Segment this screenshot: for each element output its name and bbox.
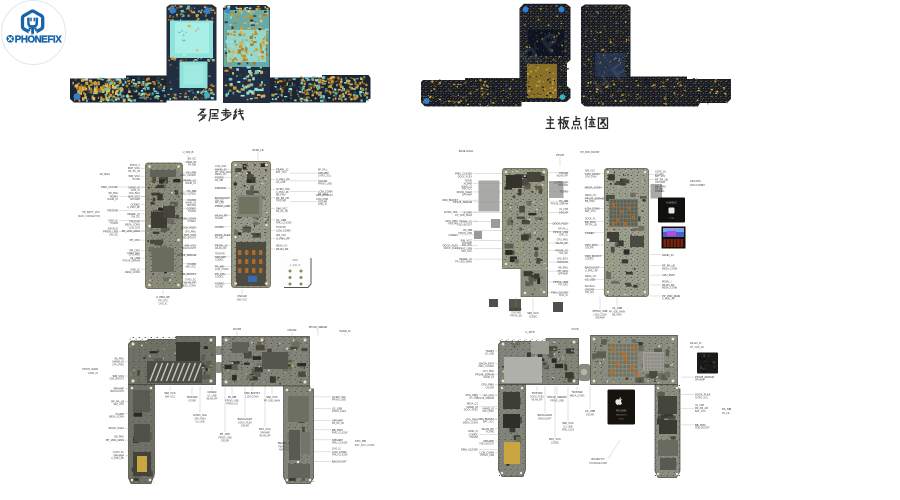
svg-text:XCVR0: XCVR0: [188, 400, 196, 402]
svg-text:DOCK_FLEX: DOCK_FLEX: [109, 426, 125, 430]
svg-text:PHONEFIX: PHONEFIX: [15, 34, 62, 45]
svg-text:BACKLIG: BACKLIG: [108, 227, 118, 230]
svg-text:XCVR0: XCVR0: [215, 285, 224, 288]
svg-text:SIM_VCC: SIM_VCC: [562, 421, 574, 425]
svg-text:PA_MB: PA_MB: [215, 237, 223, 240]
svg-text:TRISTAR: TRISTAR: [532, 391, 543, 395]
svg-text:VDD_BOOST: VDD_BOOST: [244, 391, 260, 395]
svg-text:PMU_CLK32K: PMU_CLK32K: [461, 447, 478, 451]
svg-text:U_PMU_RF: U_PMU_RF: [111, 457, 124, 460]
svg-text:BB_PMU: BB_PMU: [585, 200, 595, 203]
svg-text:WLAN_IC: WLAN_IC: [690, 341, 702, 345]
svg-text:VDD_BOOST: VDD_BOOST: [457, 223, 472, 226]
svg-text:A13 CPU: A13 CPU: [690, 179, 701, 183]
svg-text:VDD_BOOST: VDD_BOOST: [109, 378, 124, 381]
svg-text:TRISTAR: TRISTAR: [186, 204, 196, 207]
svg-text:PP1V8_SDRAM: PP1V8_SDRAM: [548, 395, 567, 399]
svg-text:GYRO_SCL: GYRO_SCL: [444, 210, 459, 214]
svg-text:DOCK_FLEX: DOCK_FLEX: [444, 247, 459, 250]
svg-text:U2_USB: U2_USB: [485, 353, 495, 356]
svg-text:SIM_VCC: SIM_VCC: [165, 396, 176, 398]
svg-text:STORAGE PWR: STORAGE PWR: [589, 462, 607, 465]
svg-text:MESA_CONN: MESA_CONN: [181, 284, 196, 287]
svg-text:SW_I2C: SW_I2C: [585, 291, 594, 294]
svg-text:U2_USB: U2_USB: [559, 209, 568, 211]
svg-text:SW_I2C: SW_I2C: [131, 216, 140, 219]
svg-text:TIGRIS: TIGRIS: [110, 222, 118, 225]
svg-text:OSCAR: OSCAR: [221, 440, 230, 443]
svg-text:PA_MB: PA_MB: [188, 164, 196, 167]
svg-text:MESA_CONN: MESA_CONN: [662, 287, 677, 290]
svg-text:BAT_VCC: BAT_VCC: [259, 427, 271, 431]
svg-text:TRISTAR: TRISTAR: [187, 395, 198, 399]
svg-text:BACKLIGHT: BACKLIGHT: [538, 413, 553, 417]
svg-text:TIGRIS: TIGRIS: [188, 210, 196, 213]
svg-text:RFFE_LB: RFFE_LB: [253, 149, 264, 152]
svg-text:PEARL_IC: PEARL_IC: [278, 441, 291, 445]
svg-text:OSCAR: OSCAR: [469, 436, 478, 439]
svg-text:U_PMU_RF: U_PMU_RF: [156, 295, 170, 299]
svg-text:VDD_BOOST: VDD_BOOST: [695, 427, 710, 430]
svg-text:CODEC: CODEC: [449, 233, 458, 237]
svg-text:SPKAMP: SPKAMP: [695, 379, 705, 382]
svg-text:NAND_IO: NAND_IO: [185, 182, 196, 185]
svg-text:CPU_PMU: CPU_PMU: [482, 410, 494, 413]
svg-text:PMU_CLK32K: PMU_CLK32K: [332, 453, 348, 456]
svg-text:VDD_BOOST: VDD_BOOST: [479, 443, 494, 446]
svg-text:CPU_PMU: CPU_PMU: [662, 273, 675, 277]
svg-text:GYRO_SCL: GYRO_SCL: [695, 396, 709, 399]
svg-text:CPU_PMU: CPU_PMU: [129, 255, 141, 257]
svg-text:CHG_IC: CHG_IC: [559, 233, 568, 236]
svg-text:PMU_CLK32K: PMU_CLK32K: [332, 431, 348, 434]
svg-text:PP_BATT_VCC: PP_BATT_VCC: [82, 211, 100, 214]
svg-text:CHG_IC: CHG_IC: [131, 189, 140, 192]
svg-text:PMU_CLK32K: PMU_CLK32K: [180, 174, 196, 177]
svg-text:PP5V0_USB: PP5V0_USB: [225, 400, 239, 402]
svg-text:PP5V0_USB: PP5V0_USB: [593, 309, 608, 313]
svg-text:TRISTAR: TRISTAR: [215, 253, 225, 256]
svg-text:BACKLIGHT: BACKLIGHT: [110, 390, 124, 393]
svg-text:APL1W92: APL1W92: [616, 410, 627, 413]
svg-text:WLAN_RF: WLAN_RF: [557, 174, 569, 177]
svg-text:LCM_CON: LCM_CON: [215, 166, 227, 168]
svg-text:OSCAR: OSCAR: [241, 425, 250, 428]
svg-text:PP1V8_SDRAM: PP1V8_SDRAM: [477, 397, 494, 400]
svg-text:J_SIM_B: J_SIM_B: [290, 263, 301, 267]
svg-text:PP_VDD_MAIN: PP_VDD_MAIN: [609, 310, 626, 313]
svg-text:MESA_CO: MESA_CO: [585, 194, 596, 197]
svg-text:SPKAMP: SPKAMP: [462, 194, 472, 197]
svg-text:SIM_VCC: SIM_VCC: [185, 265, 196, 268]
svg-text:MESA_CO: MESA_CO: [585, 275, 596, 278]
svg-text:U2_USB: U2_USB: [564, 426, 573, 428]
svg-text:1739: 1739: [669, 218, 675, 220]
svg-text:BB_PMU: BB_PMU: [559, 268, 569, 270]
svg-text:WLAN_RF: WLAN_RF: [215, 247, 227, 250]
svg-text:RAM COMBO: RAM COMBO: [690, 184, 705, 187]
svg-text:TRISTAR: TRISTAR: [276, 226, 286, 229]
svg-text:BACKLIG: BACKLIG: [585, 285, 595, 288]
svg-text:PP_CPU: PP_CPU: [558, 284, 568, 287]
svg-text:NAND_IO: NAND_IO: [510, 307, 522, 311]
svg-text:CODEC: CODEC: [207, 390, 216, 394]
svg-text:XCVR0: XCVR0: [132, 178, 141, 181]
svg-text:SIM: SIM: [292, 258, 298, 262]
svg-text:U_SIM_B: U_SIM_B: [183, 151, 194, 154]
svg-text:BAT_VCC: BAT_VCC: [655, 175, 666, 178]
svg-text:SW_I2C: SW_I2C: [187, 159, 196, 161]
svg-text:CODEC: CODEC: [551, 442, 560, 444]
svg-text:PMU_CLK32K: PMU_CLK32K: [332, 441, 348, 444]
svg-text:SIM_VCC: SIM_VCC: [164, 391, 176, 395]
svg-text:CPU_PMU: CPU_PMU: [112, 363, 124, 366]
svg-text:BACKLIGHT: BACKLIGHT: [182, 247, 196, 250]
svg-text:PMU_CLK32K: PMU_CLK32K: [478, 365, 494, 368]
svg-text:VDD_BOOST: VDD_BOOST: [181, 236, 196, 239]
svg-text:PA_MB: PA_MB: [228, 395, 237, 399]
svg-text:CAM_PWR: CAM_PWR: [316, 198, 328, 201]
svg-text:NAND_IO: NAND_IO: [468, 430, 478, 433]
svg-text:NAND_IO: NAND_IO: [662, 253, 674, 257]
svg-text:PP_VDD_MAIN: PP_VDD_MAIN: [455, 261, 472, 264]
svg-text:PMU_CLK32K: PMU_CLK32K: [101, 185, 118, 189]
svg-text:LCM_CON: LCM_CON: [129, 227, 141, 229]
svg-text:PP5V0_U: PP5V0_U: [130, 165, 140, 167]
svg-text:GYRO_SC: GYRO_SC: [113, 452, 125, 454]
svg-text:PP5V0_USB: PP5V0_USB: [480, 454, 494, 457]
svg-text:BACKLIGHT: BACKLIGHT: [538, 417, 552, 420]
svg-text:SPKAMP: SPKAMP: [130, 198, 140, 201]
svg-text:A-2345 IC: A-2345 IC: [666, 202, 677, 205]
svg-text:PA_MB: PA_MB: [722, 407, 731, 411]
svg-text:CHG_IC: CHG_IC: [559, 294, 568, 297]
svg-text:RF_FE: RF_FE: [722, 412, 730, 415]
svg-text:CODEC: CODEC: [655, 189, 664, 193]
svg-text:SPKAMP: SPKAMP: [595, 317, 605, 320]
svg-text:DOCK_FLEX: DOCK_FLEX: [458, 175, 473, 178]
svg-text:TRISTAR: TRISTAR: [107, 208, 118, 212]
svg-text:SIM_VCC: SIM_VCC: [462, 189, 473, 191]
svg-text:BASE GOLD: BASE GOLD: [459, 150, 474, 153]
svg-text:TRISTAR: TRISTAR: [572, 390, 583, 394]
svg-text:SW_I2C: SW_I2C: [109, 233, 118, 236]
svg-text:GYRO_SCL: GYRO_SCL: [193, 413, 208, 417]
svg-text:SIM_VCC: SIM_VCC: [113, 403, 124, 406]
svg-text:LCM_CONN: LCM_CONN: [246, 396, 259, 398]
svg-text:WLAN_RF: WLAN_RF: [207, 398, 219, 401]
svg-text:GYRO_SC: GYRO_SC: [185, 279, 197, 281]
svg-text:BAT_VCC: BAT_VCC: [585, 210, 596, 213]
svg-text:U2_USB: U2_USB: [196, 422, 205, 424]
svg-text:BAT_VCC: BAT_VCC: [483, 421, 494, 424]
svg-text:TRISTAR: TRISTAR: [511, 311, 521, 314]
svg-text:U_PMU_RF: U_PMU_RF: [276, 191, 289, 194]
svg-text:BB_PMU: BB_PMU: [276, 195, 286, 197]
svg-text:PP1V8_SDRAM: PP1V8_SDRAM: [123, 260, 140, 263]
svg-text:PP1V8: PP1V8: [556, 154, 564, 157]
svg-text:CPU_PMU: CPU_PMU: [194, 418, 206, 420]
svg-text:PP_CPU: PP_CPU: [215, 203, 225, 205]
svg-text:TIGRIS: TIGRIS: [464, 180, 472, 182]
svg-text:U2_USB: U2_USB: [469, 397, 479, 400]
svg-text:CPU_PMU: CPU_PMU: [185, 231, 197, 233]
svg-text:CHG_IC: CHG_IC: [332, 448, 341, 450]
svg-text:CPU_PMU: CPU_PMU: [557, 240, 569, 242]
svg-text:RF_PA_LB: RF_PA_LB: [585, 223, 597, 226]
svg-text:BB_PMU: BB_PMU: [115, 437, 125, 439]
svg-text:SIM_VCC: SIM_VCC: [527, 311, 539, 315]
svg-text:SPKAMP: SPKAMP: [260, 431, 270, 434]
svg-text:2133: 2133: [619, 419, 625, 421]
svg-text:OSCAR: OSCAR: [586, 413, 595, 416]
svg-text:MESA_CONN: MESA_CONN: [125, 223, 140, 226]
svg-text:PP5V0_USB: PP5V0_USB: [332, 399, 346, 402]
svg-text:RF_PA_LB: RF_PA_LB: [276, 210, 288, 213]
svg-text:BOARD TO: BOARD TO: [592, 458, 605, 461]
svg-text:BAT_SOC_CONN: BAT_SOC_CONN: [355, 444, 375, 447]
svg-text:BAT_VCC: BAT_VCC: [276, 171, 287, 174]
svg-text:CPU_PMU: CPU_PMU: [585, 175, 597, 178]
svg-text:MESA_CO: MESA_CO: [215, 173, 226, 176]
svg-text:PEARL_I: PEARL_I: [662, 281, 672, 284]
svg-text:U2_USB: U2_USB: [612, 306, 622, 310]
svg-text:PP_CPU: PP_CPU: [220, 432, 231, 436]
svg-text:PP1V8_SDRAM: PP1V8_SDRAM: [551, 203, 568, 206]
svg-text:BAT_VCC: BAT_VCC: [549, 437, 561, 441]
svg-text:U_PMU_RF: U_PMU_RF: [662, 298, 675, 301]
svg-text:BAT_VCC: BAT_VCC: [695, 410, 706, 413]
svg-text:VDD_BOO: VDD_BOO: [557, 259, 568, 261]
svg-text:DOCK_FL: DOCK_FL: [585, 218, 596, 220]
svg-text:PP_VDD_PA: PP_VDD_PA: [690, 346, 704, 349]
svg-text:PP5V0_USB: PP5V0_USB: [218, 437, 232, 439]
svg-text:NAND_IO: NAND_IO: [107, 198, 118, 201]
svg-text:BB_PMU: BB_PMU: [109, 193, 119, 195]
svg-text:TRISTAR: TRISTAR: [276, 200, 286, 203]
svg-text:BACKLIGHT: BACKLIGHT: [332, 459, 347, 463]
svg-text:TIGRIS: TIGRIS: [215, 217, 223, 220]
svg-text:SIM_VCC: SIM_VCC: [237, 299, 248, 301]
svg-text:AP_BGA: AP_BGA: [100, 172, 111, 176]
svg-text:RF_PA_L: RF_PA_L: [558, 227, 569, 230]
svg-text:WLAN_RF: WLAN_RF: [532, 399, 544, 402]
svg-text:PP1V8_SDRAM: PP1V8_SDRAM: [309, 326, 327, 329]
svg-text:TRISTAR: TRISTAR: [448, 223, 458, 226]
svg-text:U2_USB: U2_USB: [208, 395, 217, 397]
svg-text:MESA_CO: MESA_CO: [467, 402, 478, 405]
svg-text:XCVR: XCVR: [571, 327, 578, 331]
svg-text:U_WTR: U_WTR: [525, 330, 534, 334]
svg-text:RF_PA_LB: RF_PA_LB: [128, 170, 140, 173]
svg-text:DOCK_FLEX: DOCK_FLEX: [238, 422, 252, 424]
svg-text:PP_CPU: PP_CPU: [130, 238, 141, 242]
svg-text:CPU_PMU: CPU_PMU: [483, 371, 495, 373]
svg-text:GYRO_SCL: GYRO_SCL: [318, 175, 332, 178]
svg-text:CODEC: CODEC: [187, 220, 196, 223]
svg-text:TRISTAR: TRISTAR: [655, 181, 665, 184]
svg-text:CODEC: CODEC: [585, 257, 594, 260]
svg-text:U_PMU_RF: U_PMU_RF: [585, 269, 598, 272]
svg-text:CODEC: CODEC: [215, 259, 224, 262]
svg-text:BB_PMU: BB_PMU: [115, 358, 125, 360]
svg-text:PA_MB: PA_MB: [215, 179, 223, 182]
svg-text:SW_I2C: SW_I2C: [559, 252, 568, 255]
svg-text:BB_PMU: BB_PMU: [612, 315, 622, 317]
svg-text:VDD_BOOST: VDD_BOOST: [442, 198, 458, 202]
svg-text:MESA_CONN: MESA_CONN: [125, 271, 140, 274]
svg-text:SPKAMP: SPKAMP: [558, 273, 568, 276]
svg-text:GYRO_SC: GYRO_SC: [655, 171, 667, 173]
svg-text:PP5V0_USB: PP5V0_USB: [550, 400, 564, 402]
svg-text:MESA_CO: MESA_CO: [276, 245, 287, 248]
svg-text:RF_PA_L: RF_PA_L: [318, 169, 329, 172]
svg-text:PEARL_IC: PEARL_IC: [278, 445, 289, 448]
svg-text:NAND_IO: NAND_IO: [339, 330, 350, 333]
svg-text:PP5V0_US: PP5V0_US: [226, 404, 238, 406]
svg-text:VDD_BOO: VDD_BOO: [129, 193, 140, 195]
svg-text:LDO_DISPLAY: LDO_DISPLAY: [316, 194, 333, 197]
svg-text:CHG_IC: CHG_IC: [159, 304, 168, 306]
svg-text:SIM_VCC: SIM_VCC: [585, 170, 596, 172]
svg-text:LCM_CONN: LCM_CONN: [594, 314, 607, 316]
svg-text:PP_VDD_BOOST: PP_VDD_BOOST: [580, 151, 600, 154]
svg-text:OSCAR: OSCAR: [485, 386, 494, 389]
svg-text:SIM_VCC: SIM_VCC: [266, 395, 278, 399]
svg-text:NAND_IO: NAND_IO: [483, 376, 494, 379]
svg-text:OSCAR: OSCAR: [288, 329, 297, 332]
svg-text:TRISTAR: TRISTAR: [558, 184, 568, 187]
svg-text:DOCK_FLEX: DOCK_FLEX: [464, 408, 479, 411]
svg-text:NAND_IO: NAND_IO: [88, 372, 98, 375]
svg-text:U_PMU_RF: U_PMU_RF: [127, 206, 140, 209]
svg-text:PMU_CLK32K: PMU_CLK32K: [276, 221, 292, 224]
svg-text:PP3V0_NAND: PP3V0_NAND: [82, 368, 98, 371]
svg-text:PP1V8_SD: PP1V8_SD: [510, 316, 522, 318]
svg-text:MESA_CONN: MESA_CONN: [662, 267, 677, 270]
svg-text:XCVR0: XCVR0: [486, 430, 495, 433]
svg-text:WLAN_RF: WLAN_RF: [260, 435, 272, 438]
svg-text:MAIN_CONNECTOR: MAIN_CONNECTOR: [78, 215, 100, 218]
svg-text:DOCK_FLEX: DOCK_FLEX: [332, 410, 347, 413]
svg-text:339S00761: 339S00761: [616, 415, 628, 417]
svg-text:PP5V0_USB: PP5V0_USB: [458, 232, 472, 235]
svg-text:CHG_IC: CHG_IC: [318, 203, 327, 206]
svg-text:NAND_IO: NAND_IO: [279, 449, 289, 452]
svg-text:LCM_CONN: LCM_CONN: [215, 268, 229, 271]
svg-text:SIM_VCC: SIM_VCC: [461, 250, 472, 253]
svg-text:CODEC: CODEC: [529, 316, 538, 318]
svg-text:PP_CPU: PP_CPU: [158, 300, 168, 302]
svg-text:PP_VDD_MAIN: PP_VDD_MAIN: [455, 214, 472, 217]
svg-text:PP5V0_USB: PP5V0_USB: [318, 182, 332, 185]
svg-text:OSCAR: OSCAR: [585, 247, 594, 250]
svg-text:U2_USB: U2_USB: [585, 409, 595, 413]
svg-text:RF_PA_LB: RF_PA_LB: [332, 422, 344, 425]
svg-text:PMU_CLK32K: PMU_CLK32K: [180, 193, 196, 196]
svg-text:FPC_BB: FPC_BB: [355, 439, 366, 443]
svg-text:MESA_CONN: MESA_CONN: [463, 421, 478, 424]
svg-text:MESA_CONN: MESA_CONN: [109, 415, 124, 418]
svg-text:DOCK_FLEX: DOCK_FLEX: [530, 396, 544, 398]
svg-text:U2_USB: U2_USB: [276, 181, 286, 184]
svg-text:OSCAR: OSCAR: [237, 294, 246, 298]
svg-text:CODEC: CODEC: [215, 276, 224, 279]
svg-text:PMU_CLK3: PMU_CLK3: [562, 430, 575, 432]
svg-text:XCVR0: XCVR0: [233, 328, 242, 331]
svg-text:PP_VDD_MAIN: PP_VDD_MAIN: [264, 399, 281, 402]
svg-text:BACKLIGHT: BACKLIGHT: [238, 417, 253, 421]
svg-text:SIM_VCC: SIM_VCC: [276, 235, 287, 237]
svg-text:U2_USB: U2_USB: [695, 405, 704, 407]
svg-text:MESA_CONN: MESA_CONN: [570, 394, 585, 397]
